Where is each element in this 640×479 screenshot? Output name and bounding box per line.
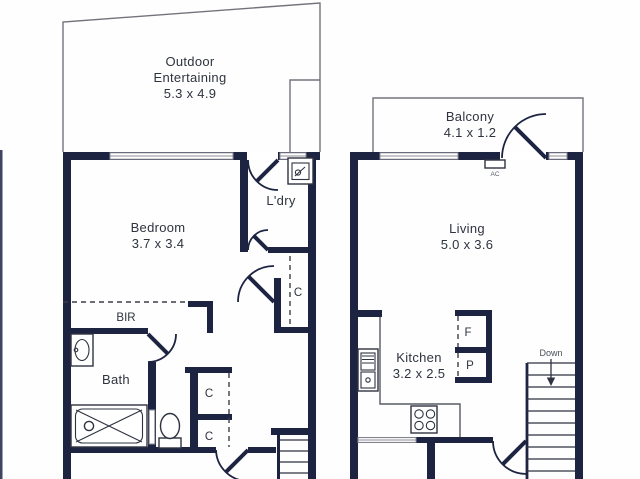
wall-entry-divider bbox=[427, 443, 435, 479]
bath-sliding-door bbox=[149, 410, 155, 444]
wall-fp-divider bbox=[455, 347, 492, 353]
balcony-dims: 4.1 x 1.2 bbox=[444, 125, 497, 140]
wall-cupboards-top bbox=[185, 367, 232, 373]
bath-label: Bath bbox=[102, 372, 130, 387]
outdoor-label: Outdoor bbox=[165, 54, 214, 69]
left-stairs-rail bbox=[277, 435, 280, 479]
hall-door-leaf bbox=[225, 450, 248, 473]
wall-cupboards-divider bbox=[198, 414, 232, 420]
wall-fp-right bbox=[486, 310, 492, 383]
right-unit: AC bbox=[350, 98, 583, 479]
toilet-icon bbox=[159, 414, 181, 449]
hall-cupboard-label: C bbox=[294, 287, 302, 299]
wall-left bbox=[350, 160, 358, 479]
cooktop-icon bbox=[411, 406, 437, 433]
ac-label: AC bbox=[490, 171, 499, 178]
wall-bottom bbox=[63, 447, 216, 453]
wall-bedroom-step-v bbox=[207, 301, 213, 333]
bir-label: BIR bbox=[116, 312, 135, 324]
lower-cupboard-label: C bbox=[205, 431, 213, 443]
wall-cupboards-left bbox=[190, 367, 198, 447]
wall-bottom-stub bbox=[248, 447, 276, 453]
bath-door-leaf bbox=[148, 334, 168, 354]
upper-cupboard-label: C bbox=[205, 388, 213, 400]
right-stairs bbox=[527, 359, 575, 479]
wall-hall-cupboard-left bbox=[274, 278, 281, 333]
wall-bath-top bbox=[67, 328, 148, 334]
floorplan: Outdoor Entertaining 5.3 x 4.9 Bedroom 3… bbox=[0, 0, 640, 479]
bedroom-door-leaf bbox=[249, 277, 275, 303]
laundry-door-leaf bbox=[254, 236, 268, 250]
wall-left bbox=[63, 160, 71, 479]
fridge-label: F bbox=[464, 327, 471, 339]
outdoor-storage-outline bbox=[290, 80, 320, 152]
outdoor-label-2: Entertaining bbox=[154, 70, 227, 85]
kitchen-dims: 3.2 x 2.5 bbox=[393, 366, 446, 381]
stairs-down-label: Down bbox=[539, 348, 562, 358]
wall-hall-cupboard-bottom bbox=[274, 327, 316, 333]
wall-right bbox=[575, 160, 583, 479]
left-stairs bbox=[277, 435, 308, 479]
kitchen-label: Kitchen bbox=[396, 350, 441, 365]
left-unit: Outdoor Entertaining 5.3 x 4.9 Bedroom 3… bbox=[0, 3, 320, 479]
wall-bedroom-right bbox=[240, 160, 248, 252]
laundry-trough-icon bbox=[288, 158, 313, 184]
bathtub-icon bbox=[71, 405, 147, 447]
living-label: Living bbox=[449, 221, 485, 236]
laundry-label: L'dry bbox=[266, 193, 295, 208]
wall-laundry-bottom bbox=[268, 247, 316, 253]
pantry-label: P bbox=[466, 360, 474, 372]
floorplan-svg: Outdoor Entertaining 5.3 x 4.9 Bedroom 3… bbox=[0, 0, 640, 479]
entry-door-leaf bbox=[257, 160, 278, 181]
wall-kitchen-stub bbox=[350, 310, 382, 317]
wall-pantry-bottom bbox=[455, 377, 492, 383]
bedroom-label: Bedroom bbox=[131, 220, 186, 235]
kitchen-sink-icon bbox=[358, 349, 378, 391]
ac-unit-icon bbox=[485, 160, 505, 168]
left-stairs-treads bbox=[280, 440, 308, 473]
stairs-door-leaf bbox=[503, 441, 526, 464]
wall-stairwell-top bbox=[271, 428, 308, 435]
bedroom-dims: 3.7 x 3.4 bbox=[132, 236, 185, 251]
outdoor-dims: 5.3 x 4.9 bbox=[164, 86, 217, 101]
image-edge-wall bbox=[0, 150, 3, 479]
living-dims: 5.0 x 3.6 bbox=[441, 237, 494, 252]
bath-basin-icon bbox=[71, 334, 93, 366]
down-arrow-head bbox=[547, 378, 555, 387]
wall-right bbox=[308, 160, 316, 479]
balcony-label: Balcony bbox=[446, 109, 495, 124]
entry-door-gap bbox=[247, 152, 278, 161]
